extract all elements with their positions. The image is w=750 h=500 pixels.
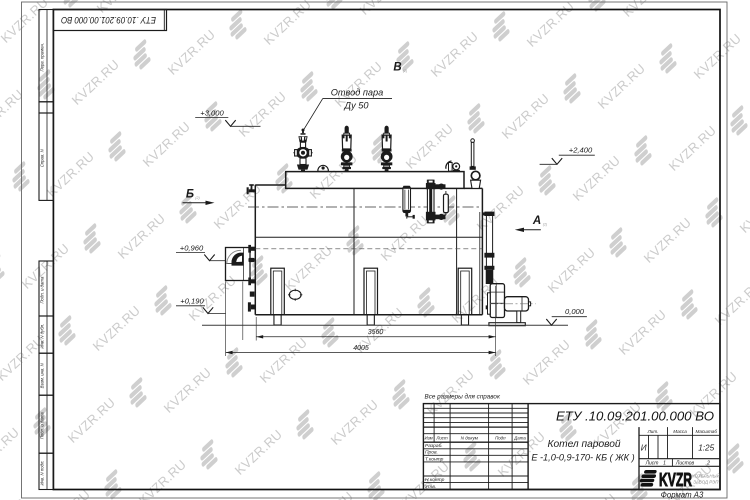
svg-text:Ду 50: Ду 50 [344,100,370,110]
svg-text:Подп. и дата: Подп. и дата [40,412,45,440]
svg-text:Все размеры для справок: Все размеры для справок [425,393,501,401]
svg-text:Листов: Листов [675,461,695,467]
svg-text:Пров.: Пров. [425,450,438,456]
svg-text:4005: 4005 [353,345,369,352]
svg-text:+0,190: +0,190 [180,297,204,306]
svg-text:+3,000: +3,000 [200,109,224,118]
svg-text:Т.контр: Т.контр [425,456,444,462]
svg-text:+2,400: +2,400 [569,146,593,155]
svg-text:+0,960: +0,960 [180,243,204,252]
svg-text:А: А [532,215,541,227]
svg-text:(2): (2) [543,223,547,227]
svg-text:ЕТУ .10.09.201.00.000 ВО: ЕТУ .10.09.201.00.000 ВО [61,15,156,25]
svg-text:Е -1,0-0,9-170- КБ ( ЖК ): Е -1,0-0,9-170- КБ ( ЖК ) [531,453,634,463]
svg-text:Разраб.: Разраб. [425,443,443,449]
svg-text:0,000: 0,000 [565,307,585,316]
svg-text:Утв.: Утв. [425,484,436,490]
svg-text:Взам. инв. N: Взам. инв. N [40,362,45,388]
svg-text:Масса: Масса [673,429,687,434]
svg-text:ЕТУ .10.09.201.00.000 ВО: ЕТУ .10.09.201.00.000 ВО [556,410,714,424]
svg-text:1:25: 1:25 [698,444,714,453]
svg-text:Котел паровой: Котел паровой [547,439,620,450]
svg-text:Инв. N подл.: Инв. N подл. [40,460,45,485]
svg-text:Справ. N: Справ. N [40,148,45,167]
svg-text:Н.контр: Н.контр [425,477,445,483]
svg-text:Лист: Лист [645,461,659,467]
svg-text:И: И [641,444,647,453]
svg-text:1: 1 [663,461,666,467]
svg-text:ЗАВОД РЭП: ЗАВОД РЭП [693,480,719,485]
svg-text:N докум: N докум [461,435,479,440]
svg-text:2: 2 [706,461,710,467]
svg-text:Лист: Лист [435,435,448,440]
svg-text:Отвод пара: Отвод пара [331,87,384,97]
svg-text:(2): (2) [403,69,407,73]
svg-text:3560: 3560 [368,329,384,336]
svg-text:Инв. N дубл.: Инв. N дубл. [40,324,45,349]
svg-text:Подп: Подп [495,435,506,440]
svg-text:Лит.: Лит. [647,429,659,434]
svg-text:Б: Б [186,189,194,201]
svg-text:Масштаб: Масштаб [695,429,717,434]
svg-text:В: В [393,62,401,74]
svg-text:(2): (2) [195,196,199,200]
svg-text:Изм: Изм [425,435,433,440]
svg-text:Дата: Дата [513,435,526,440]
svg-text:Формат А3: Формат А3 [661,491,704,500]
svg-text:KVZR: KVZR [659,469,692,490]
svg-text:КОТЕЛЬНЫЙ: КОТЕЛЬНЫЙ [692,474,720,479]
svg-text:Перв. примен.: Перв. примен. [40,43,45,72]
svg-text:Подп. и дата: Подп. и дата [40,276,45,304]
